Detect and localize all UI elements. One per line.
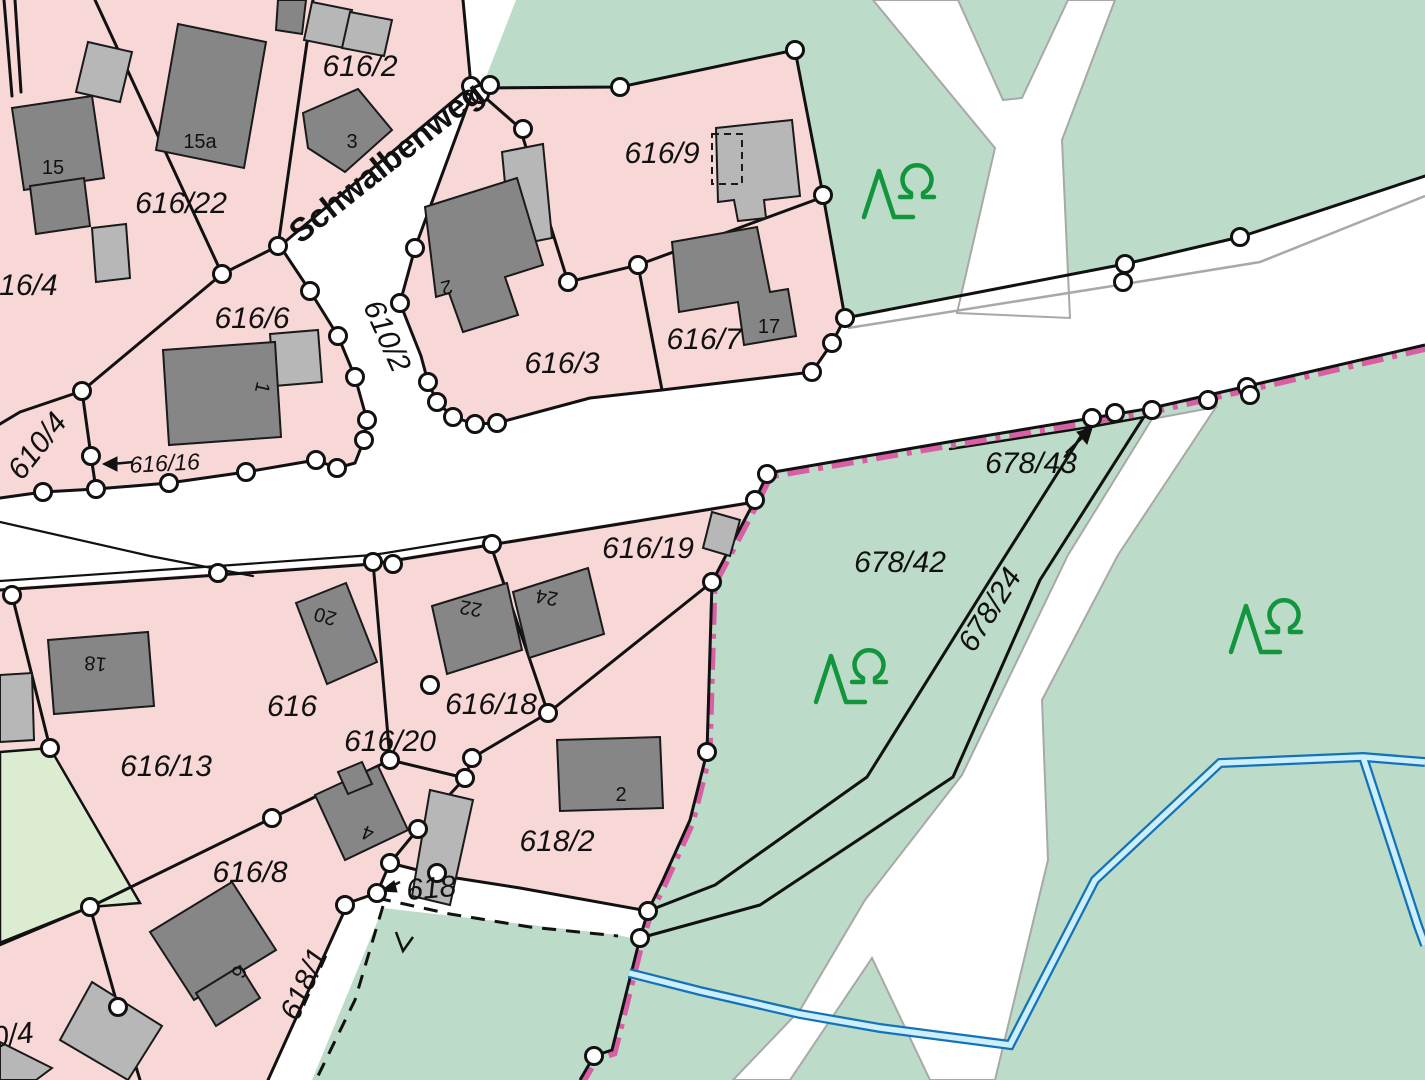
boundary-point bbox=[382, 855, 399, 872]
boundary-point bbox=[560, 274, 577, 291]
boundary-point bbox=[699, 744, 716, 761]
parcel-616-7: 616/7 bbox=[666, 323, 742, 356]
boundary-point bbox=[464, 750, 481, 767]
boundary-point bbox=[804, 364, 821, 381]
boundary-point bbox=[308, 452, 325, 469]
house-18: 18 bbox=[83, 651, 107, 675]
map-canvas[interactable]: Schwalbenweg616/2616/22616/4616/6616/961… bbox=[0, 0, 1425, 1080]
boundary-point bbox=[359, 412, 376, 429]
boundary-point bbox=[1144, 402, 1161, 419]
boundary-point bbox=[270, 238, 287, 255]
boundary-point bbox=[457, 770, 474, 787]
parcel-678-43: 678/43 bbox=[985, 447, 1077, 480]
house-15: 15 bbox=[42, 157, 64, 179]
parcel-616-4: 616/4 bbox=[0, 269, 58, 302]
boundary-point bbox=[429, 394, 446, 411]
parcel-616-13: 616/13 bbox=[120, 750, 212, 783]
parcel-616-9: 616/9 bbox=[624, 137, 699, 170]
boundary-point bbox=[264, 810, 281, 827]
boundary-point bbox=[540, 705, 557, 722]
boundary-point bbox=[407, 240, 424, 257]
boundary-point bbox=[161, 475, 178, 492]
parcel-616-20: 616/20 bbox=[344, 725, 436, 758]
boundary-point bbox=[1107, 405, 1124, 422]
parcel-678-42: 678/42 bbox=[854, 546, 946, 579]
building-2-618-2 bbox=[557, 737, 663, 811]
outbuilding bbox=[92, 224, 130, 282]
boundary-point bbox=[420, 374, 437, 391]
boundary-point bbox=[214, 266, 231, 283]
parcel-616-19: 616/19 bbox=[602, 532, 694, 565]
boundary-point bbox=[640, 903, 657, 920]
parcel-616-3: 616/3 bbox=[524, 347, 599, 380]
parcel-616: 616 bbox=[267, 690, 317, 723]
boundary-point bbox=[238, 464, 255, 481]
boundary-point bbox=[365, 554, 382, 571]
building-1 bbox=[163, 342, 281, 445]
boundary-point bbox=[4, 587, 21, 604]
boundary-point bbox=[489, 415, 506, 432]
boundary-point bbox=[1115, 274, 1132, 291]
house-22: 22 bbox=[458, 595, 484, 621]
parcel-616-2: 616/2 bbox=[322, 50, 397, 83]
boundary-point bbox=[42, 740, 59, 757]
parcel-616-6: 616/6 bbox=[214, 302, 289, 335]
boundary-point bbox=[759, 466, 776, 483]
boundary-point bbox=[515, 121, 532, 138]
boundary-point bbox=[210, 565, 227, 582]
boundary-point bbox=[747, 492, 764, 509]
boundary-point bbox=[385, 556, 402, 573]
parcel-616-16: 616/16 bbox=[129, 448, 201, 478]
outbuilding bbox=[0, 673, 34, 742]
parcel-616-22: 616/22 bbox=[135, 187, 227, 220]
house-24: 24 bbox=[534, 584, 560, 610]
boundary-point bbox=[445, 409, 462, 426]
building-15-annex bbox=[30, 178, 90, 234]
boundary-point bbox=[392, 295, 409, 312]
boundary-point bbox=[369, 885, 386, 902]
boundary-point bbox=[837, 310, 854, 327]
boundary-point bbox=[482, 77, 499, 94]
boundary-point bbox=[347, 369, 364, 386]
boundary-point bbox=[74, 383, 91, 400]
boundary-point bbox=[484, 536, 501, 553]
parcel-0-4: 0/4 bbox=[0, 1016, 36, 1054]
boundary-point bbox=[88, 481, 105, 498]
boundary-point bbox=[337, 897, 354, 914]
boundary-point bbox=[330, 328, 347, 345]
parcel-616-8: 616/8 bbox=[212, 856, 287, 889]
boundary-point bbox=[467, 416, 484, 433]
house-2-618-2: 2 bbox=[615, 784, 626, 806]
house-15a: 15a bbox=[183, 131, 217, 153]
boundary-point bbox=[1117, 256, 1134, 273]
building-top-edge bbox=[276, 0, 306, 34]
boundary-point bbox=[356, 432, 373, 449]
boundary-point bbox=[302, 283, 319, 300]
parcel-618-2: 618/2 bbox=[519, 825, 594, 858]
boundary-point bbox=[815, 187, 832, 204]
boundary-point bbox=[82, 899, 99, 916]
boundary-point bbox=[83, 448, 100, 465]
boundary-point bbox=[612, 79, 629, 96]
boundary-point bbox=[1242, 387, 1259, 404]
house-3: 3 bbox=[346, 131, 357, 153]
boundary-point bbox=[787, 42, 804, 59]
boundary-point bbox=[632, 930, 649, 947]
boundary-point bbox=[110, 999, 127, 1016]
boundary-point bbox=[1232, 229, 1249, 246]
boundary-point bbox=[422, 677, 439, 694]
house-17: 17 bbox=[758, 316, 780, 338]
boundary-point bbox=[35, 484, 52, 501]
boundary-point bbox=[1084, 410, 1101, 427]
boundary-point bbox=[329, 460, 346, 477]
boundary-point bbox=[704, 574, 721, 591]
boundary-point bbox=[586, 1048, 603, 1065]
boundary-point bbox=[630, 257, 647, 274]
boundary-point bbox=[410, 821, 427, 838]
boundary-point bbox=[1200, 392, 1217, 409]
boundary-point bbox=[824, 335, 841, 352]
parcel-616-18: 616/18 bbox=[445, 688, 537, 721]
parcel-618: 618 bbox=[405, 870, 458, 907]
